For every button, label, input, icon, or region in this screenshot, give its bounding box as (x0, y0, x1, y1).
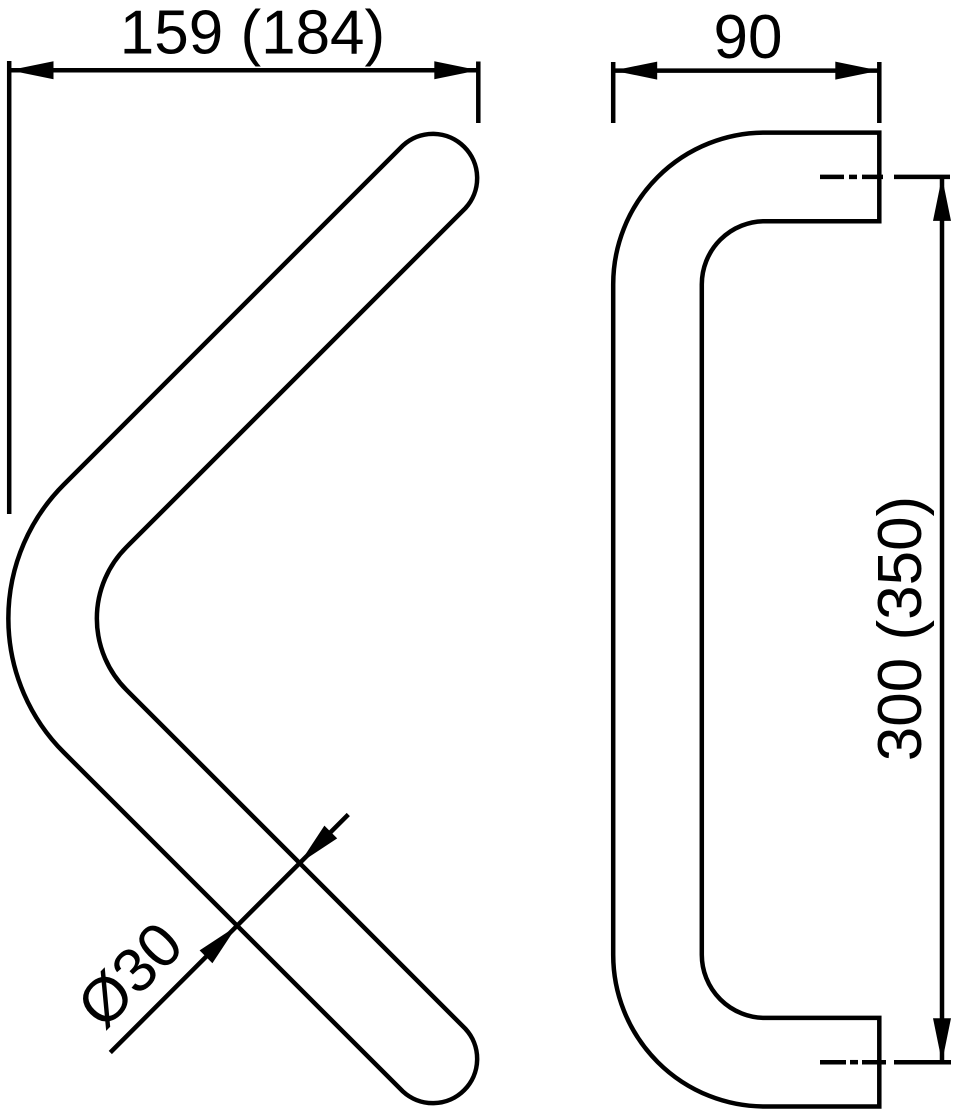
svg-text:300 (350): 300 (350) (866, 496, 935, 761)
svg-text:90: 90 (714, 3, 783, 72)
svg-text:159 (184): 159 (184) (120, 0, 385, 67)
